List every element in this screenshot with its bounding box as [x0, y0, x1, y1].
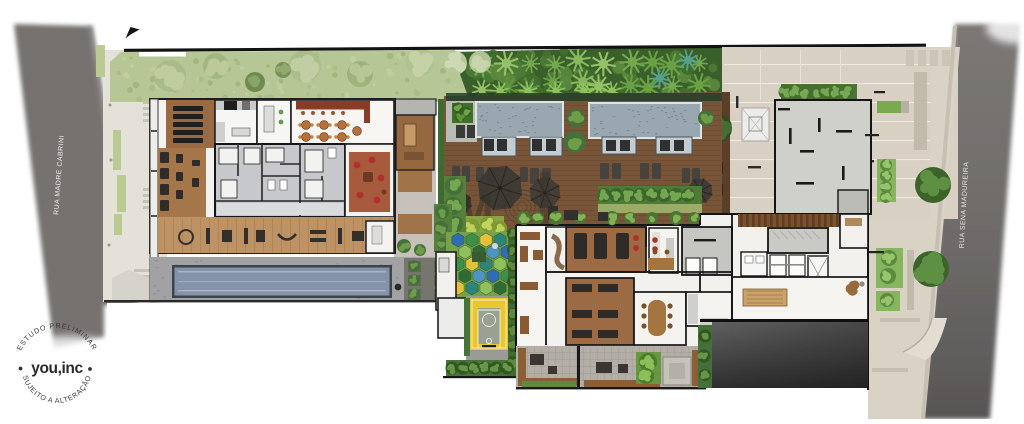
svg-text:you,inc: you,inc [31, 360, 83, 377]
